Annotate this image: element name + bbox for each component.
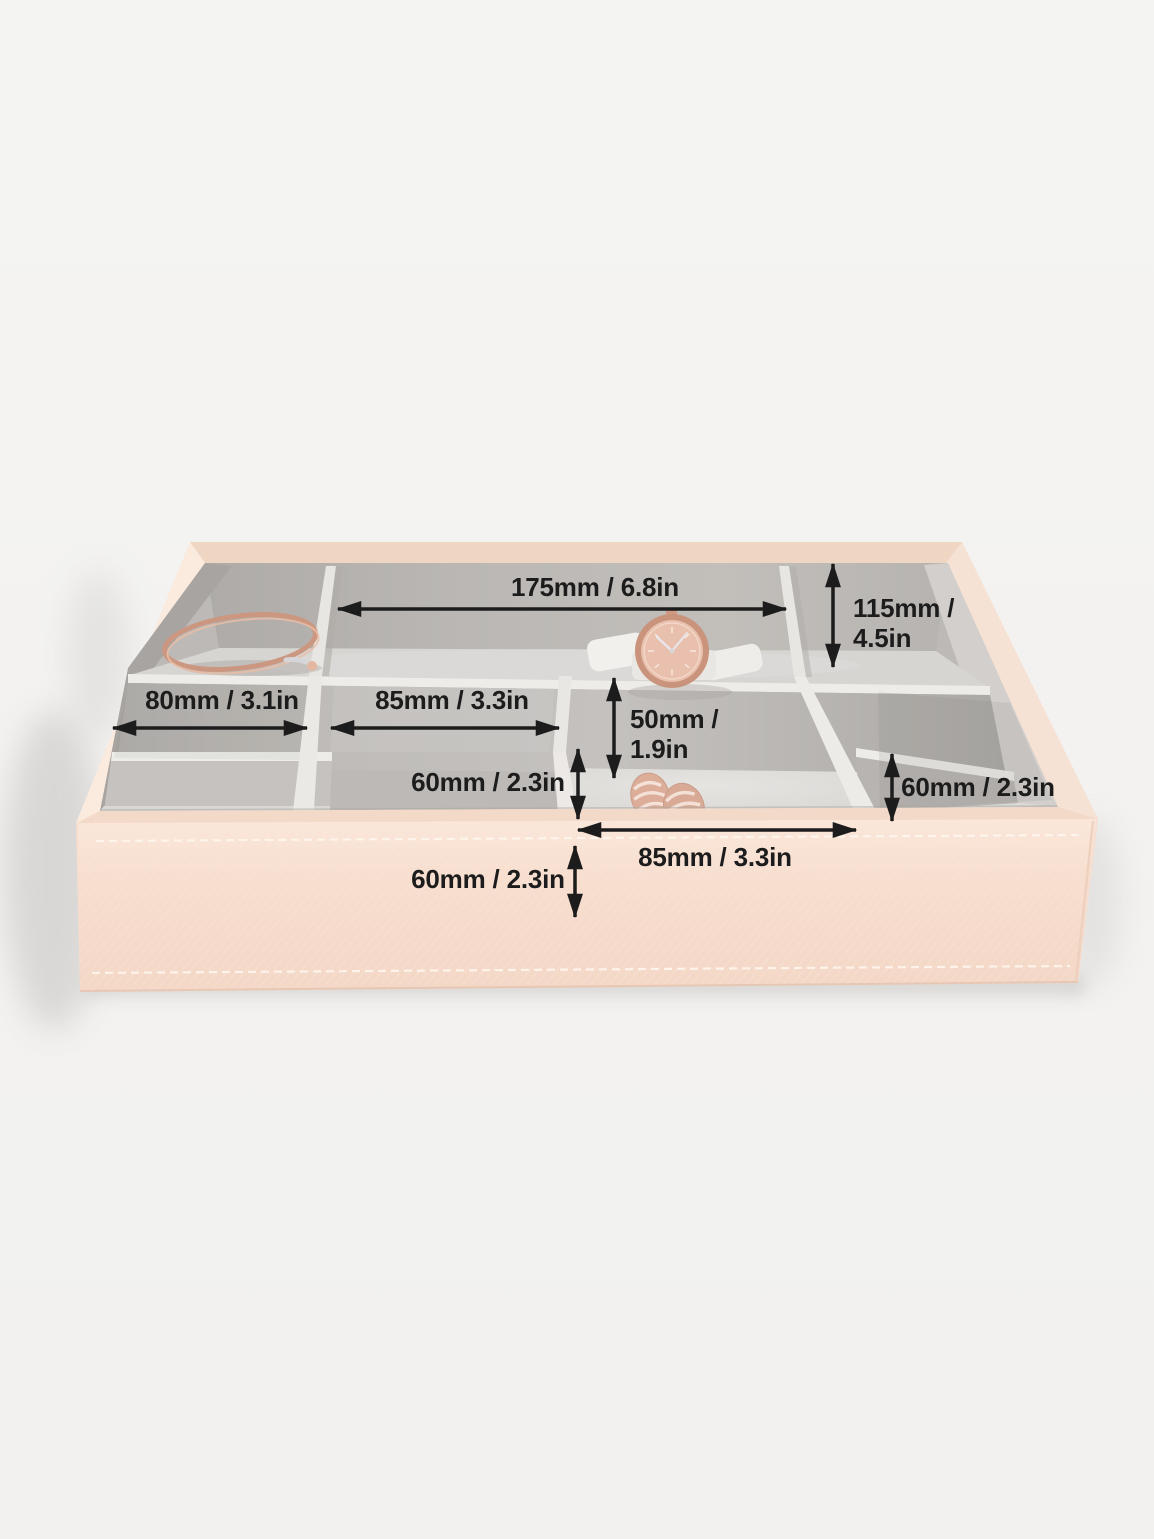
dimension-label-line: 50mm / xyxy=(630,704,718,734)
dimension-label-back-compartment-depth: 115mm / 4.5in xyxy=(853,593,954,653)
dimension-label-back-compartment-width: 175mm / 6.8in xyxy=(511,572,679,602)
dimension-label-line: 115mm / xyxy=(853,593,954,623)
dimension-label-left-compartment-width: 80mm / 3.1in xyxy=(145,685,299,715)
dimension-label-middle-compartment-width: 85mm / 3.3in xyxy=(375,685,529,715)
tray-illustration xyxy=(0,0,1154,1539)
dimension-label-front-compartment-width: 85mm / 3.3in xyxy=(638,842,792,872)
dimension-label-centre-divider-height: 60mm / 2.3in xyxy=(411,767,565,797)
tray-back-rim xyxy=(190,542,962,563)
dimension-label-line: 4.5in xyxy=(853,623,954,653)
dimension-label-line: 1.9in xyxy=(630,734,718,764)
dimension-label-tray-height: 60mm / 2.3in xyxy=(411,864,565,894)
dimension-label-right-divider-height: 60mm / 2.3in xyxy=(901,772,1055,802)
dimension-label-centre-compartment-depth: 50mm / 1.9in xyxy=(630,704,718,764)
jewellery-tray-dimension-image: 175mm / 6.8in 115mm / 4.5in 80mm / 3.1in… xyxy=(0,0,1154,1539)
